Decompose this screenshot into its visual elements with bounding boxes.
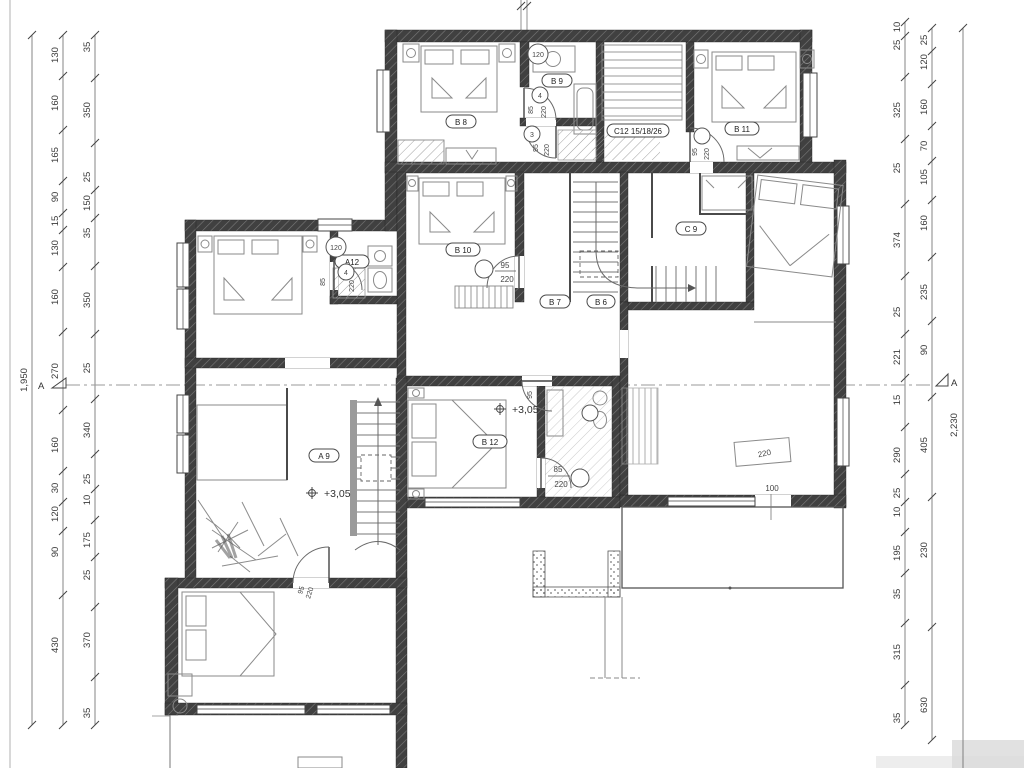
window-icon xyxy=(177,243,189,287)
svg-text:85: 85 xyxy=(528,106,535,114)
room-label-a9: A 9 xyxy=(309,449,339,462)
svg-text:370: 370 xyxy=(82,632,93,648)
svg-text:130: 130 xyxy=(50,47,61,63)
pencil-scribbles xyxy=(198,500,298,572)
svg-text:90: 90 xyxy=(50,547,61,558)
svg-text:B 9: B 9 xyxy=(551,77,564,86)
window-icon xyxy=(803,73,817,137)
elevation-mark-icon xyxy=(306,487,318,499)
svg-text:325: 325 xyxy=(892,102,903,118)
elevation-marks: +3,05 +3,05 xyxy=(306,403,539,500)
dim-total-left: 1,950 xyxy=(19,368,30,392)
dim-total-right: 2,230 xyxy=(949,413,960,437)
svg-text:B 12: B 12 xyxy=(482,438,499,447)
svg-text:340: 340 xyxy=(82,422,93,438)
terrace-right xyxy=(622,507,843,590)
shaft xyxy=(533,551,620,597)
svg-text:150: 150 xyxy=(82,195,93,211)
elevation-value: +3,05 xyxy=(512,404,539,416)
dimension-chain-right-middle: 25 120 160 70 105 160 235 90 405 230 630 xyxy=(919,24,936,744)
thin-partitions xyxy=(197,172,754,480)
svg-text:160: 160 xyxy=(50,289,61,305)
svg-text:25: 25 xyxy=(892,40,903,51)
svg-text:3: 3 xyxy=(530,132,534,139)
svg-text:C12 15/18/26: C12 15/18/26 xyxy=(614,127,663,136)
svg-text:4: 4 xyxy=(344,270,348,277)
room-label-b11: B 11 xyxy=(725,122,759,135)
window-icon xyxy=(177,435,189,473)
svg-text:220: 220 xyxy=(349,280,356,292)
bathtub-icon xyxy=(574,84,596,134)
svg-text:B 11: B 11 xyxy=(734,125,750,134)
svg-text:70: 70 xyxy=(919,141,930,152)
bed-icon xyxy=(198,236,317,314)
room-label-b12: B 12 xyxy=(473,435,507,448)
window-icon xyxy=(837,206,849,264)
svg-text:220: 220 xyxy=(538,391,545,403)
svg-text:25: 25 xyxy=(82,363,93,374)
svg-text:95: 95 xyxy=(692,148,699,156)
room-label-b8: B 8 xyxy=(446,115,476,128)
room-label-c9: C 9 xyxy=(676,222,706,235)
svg-text:130: 130 xyxy=(50,240,61,256)
bed-icon xyxy=(407,176,517,244)
svg-text:85: 85 xyxy=(320,278,327,286)
svg-text:15: 15 xyxy=(892,395,903,406)
svg-text:160: 160 xyxy=(919,99,930,115)
svg-text:220: 220 xyxy=(541,106,548,118)
svg-text:405: 405 xyxy=(919,437,930,453)
svg-text:165: 165 xyxy=(50,147,61,163)
stairs-a9 xyxy=(350,397,400,550)
svg-text:230: 230 xyxy=(919,542,930,558)
door-number-circle xyxy=(694,128,710,144)
svg-text:B 7: B 7 xyxy=(549,298,562,307)
bed-icon xyxy=(168,592,276,713)
toilet-icon xyxy=(368,268,392,292)
dimension-chain-left-middle: 130 160 165 90 15 130 160 270 160 30 120… xyxy=(50,31,67,729)
window-icon xyxy=(317,705,390,714)
section-marker-left-label: A xyxy=(38,381,45,392)
svg-text:25: 25 xyxy=(892,488,903,499)
dimension-chain-left-outer: 1,950 xyxy=(19,31,36,729)
shower-icon xyxy=(558,130,596,160)
svg-text:220: 220 xyxy=(305,586,315,599)
elevation-mark-icon xyxy=(494,403,506,415)
svg-text:235: 235 xyxy=(919,284,930,300)
svg-text:25: 25 xyxy=(82,474,93,485)
wall-openings xyxy=(285,118,791,588)
svg-text:105: 105 xyxy=(919,169,930,185)
svg-text:120: 120 xyxy=(532,52,544,59)
svg-text:B 8: B 8 xyxy=(455,118,468,127)
room-label-b10: B 10 xyxy=(446,243,480,256)
room-label-b6: B 6 xyxy=(587,295,615,308)
wardrobe-icon xyxy=(455,286,513,308)
bed-icon xyxy=(694,50,814,122)
window-icon xyxy=(318,219,352,231)
svg-text:221: 221 xyxy=(892,349,903,365)
svg-text:95: 95 xyxy=(527,391,534,399)
svg-text:90: 90 xyxy=(919,345,930,356)
svg-text:374: 374 xyxy=(892,232,903,248)
dimension-chain-right-outer: 2,230 xyxy=(949,24,967,768)
room-label-b7: B 7 xyxy=(540,295,570,308)
svg-text:95: 95 xyxy=(533,144,540,152)
planter-icon xyxy=(298,757,342,768)
svg-text:35: 35 xyxy=(82,42,93,53)
svg-text:350: 350 xyxy=(82,102,93,118)
svg-text:35: 35 xyxy=(82,708,93,719)
closet-icon xyxy=(702,176,752,210)
svg-text:95: 95 xyxy=(501,261,510,270)
dimension-chain-right-inner: 10 25 325 25 374 25 221 15 290 25 10 195… xyxy=(892,18,909,729)
svg-text:160: 160 xyxy=(919,215,930,231)
svg-text:35: 35 xyxy=(892,713,903,724)
svg-text:120: 120 xyxy=(50,506,61,522)
svg-text:195: 195 xyxy=(892,545,903,561)
window-icon xyxy=(177,289,189,329)
window-icon xyxy=(197,705,305,714)
svg-text:220: 220 xyxy=(704,148,711,160)
window-icon xyxy=(668,497,755,506)
floor-plan-scan: 1,950 130 160 165 90 15 130 160 270 160 … xyxy=(0,0,1024,768)
bed-icon xyxy=(403,44,515,112)
door-arc-icon xyxy=(293,547,329,583)
floor-plan-svg: 1,950 130 160 165 90 15 130 160 270 160 … xyxy=(0,0,1024,768)
svg-text:25: 25 xyxy=(892,307,903,318)
svg-text:120: 120 xyxy=(330,245,342,252)
svg-text:25: 25 xyxy=(82,570,93,581)
wardrobe-width-label: 220 xyxy=(757,448,772,460)
svg-text:35: 35 xyxy=(82,228,93,239)
svg-text:30: 30 xyxy=(50,483,61,494)
svg-text:350: 350 xyxy=(82,292,93,308)
furniture xyxy=(168,44,843,768)
svg-text:90: 90 xyxy=(50,192,61,203)
room-label-c12: C12 15/18/26 xyxy=(607,124,669,137)
svg-text:85: 85 xyxy=(554,465,563,474)
svg-text:C 9: C 9 xyxy=(685,225,698,234)
window-icon xyxy=(837,398,849,466)
svg-text:25: 25 xyxy=(892,163,903,174)
svg-text:220: 220 xyxy=(500,275,514,284)
svg-text:4: 4 xyxy=(538,93,542,100)
svg-text:160: 160 xyxy=(50,437,61,453)
dimension-chain-left-inner: 35 350 25 150 35 350 25 340 25 10 175 25… xyxy=(82,31,99,729)
svg-text:290: 290 xyxy=(892,447,903,463)
wardrobe-icon xyxy=(602,45,682,120)
svg-text:A 9: A 9 xyxy=(318,452,330,461)
door-number-circle xyxy=(571,469,589,487)
svg-text:315: 315 xyxy=(892,644,903,660)
svg-text:630: 630 xyxy=(919,697,930,713)
opening-width-label: 100 xyxy=(765,484,779,493)
section-marker-right-label: A xyxy=(951,378,958,389)
svg-text:15: 15 xyxy=(50,216,61,227)
window-icon xyxy=(177,395,189,433)
svg-text:220: 220 xyxy=(544,144,551,156)
dresser-icon xyxy=(446,148,496,164)
svg-text:175: 175 xyxy=(82,532,93,548)
svg-text:10: 10 xyxy=(892,22,903,33)
window-icon xyxy=(425,498,520,507)
door-number-circle xyxy=(475,260,493,278)
svg-text:430: 430 xyxy=(50,637,61,653)
stairs-main xyxy=(573,182,716,302)
svg-text:10: 10 xyxy=(892,507,903,518)
svg-text:220: 220 xyxy=(554,480,568,489)
svg-text:10: 10 xyxy=(82,495,93,506)
svg-text:35: 35 xyxy=(892,589,903,600)
svg-text:120: 120 xyxy=(919,54,930,70)
room-label-b9: B 9 xyxy=(542,74,572,87)
svg-text:25: 25 xyxy=(82,172,93,183)
svg-text:160: 160 xyxy=(50,95,61,111)
canopy-projection xyxy=(590,597,640,678)
fixture-mark xyxy=(582,405,598,421)
washbasin-icon xyxy=(368,246,392,266)
wardrobe-icon xyxy=(398,140,444,164)
bed-icon xyxy=(747,175,844,277)
svg-text:B 10: B 10 xyxy=(455,246,472,255)
svg-text:25: 25 xyxy=(919,35,930,46)
elevation-value: +3,05 xyxy=(324,488,351,500)
wardrobe-icon xyxy=(622,388,658,464)
svg-text:B 6: B 6 xyxy=(595,298,608,307)
window-icon xyxy=(377,70,390,132)
walls xyxy=(165,30,846,768)
door-annotations: 4 85 220 3 95 220 95 220 95 220 4 85 220… xyxy=(297,44,780,600)
svg-text:270: 270 xyxy=(50,363,61,379)
bench-icon xyxy=(737,146,799,160)
